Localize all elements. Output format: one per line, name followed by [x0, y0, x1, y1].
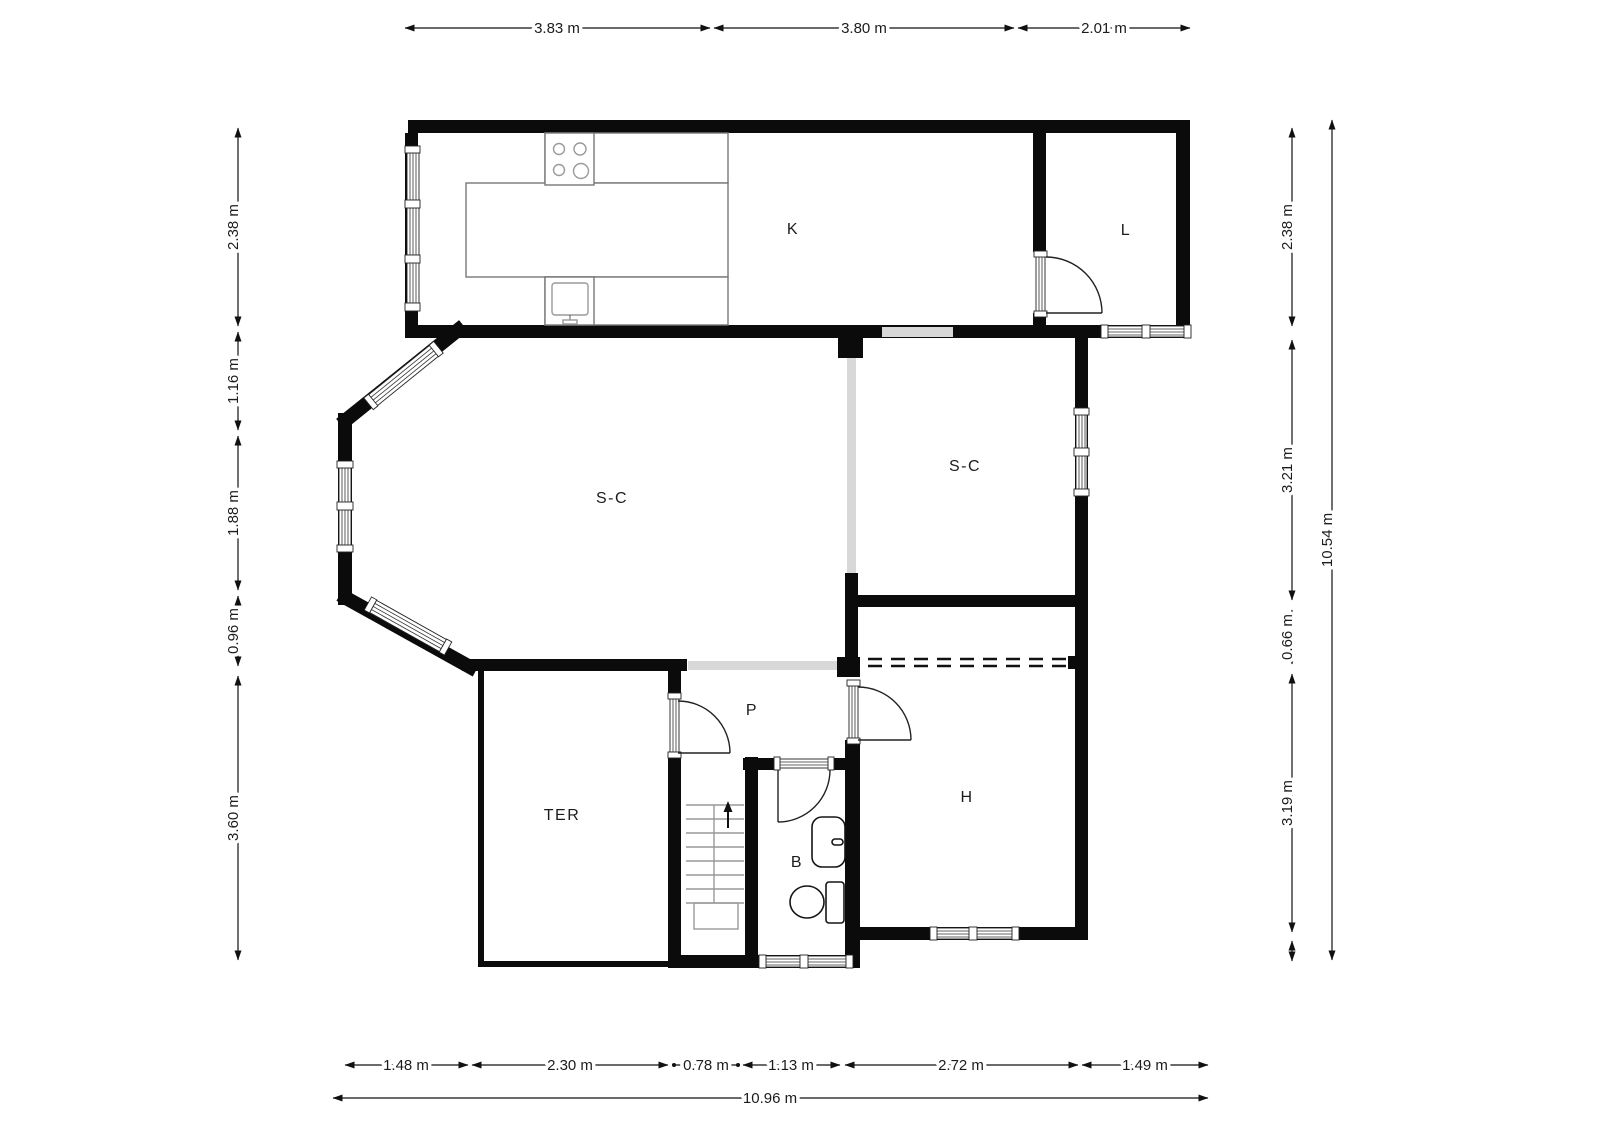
- wall-bath-right: [845, 740, 860, 968]
- window-laundry-bottom: [1101, 325, 1191, 338]
- wall-l-right: [1176, 120, 1190, 338]
- wall-terrace-left: [478, 671, 484, 967]
- room-label-living-right: S-C: [949, 458, 981, 475]
- door-bathroom: [774, 757, 834, 822]
- openings: [688, 327, 953, 670]
- wall-sc-divider-stub-top: [838, 338, 863, 358]
- dim-bottom-0: 1.48 m: [383, 1057, 429, 1074]
- dim-right-0: 2.38 m: [1279, 204, 1296, 250]
- wall-kitchen-bottom: [405, 325, 1190, 338]
- window-living-right: [1074, 408, 1089, 496]
- dim-right-2: 0.66 m: [1279, 614, 1296, 660]
- windows: [337, 146, 1191, 968]
- dim-top-0: 3.83 m: [534, 20, 580, 37]
- dim-left-1: 1.16 m: [225, 358, 242, 404]
- window-bedroom-bottom: [930, 927, 1019, 940]
- room-label-hallway: P: [746, 702, 758, 719]
- wall-right-lower: [1075, 607, 1088, 940]
- window-bay-left: [337, 461, 353, 552]
- dim-right-total: 10.54 m: [1319, 513, 1336, 567]
- kitchen-sink-icon: [545, 277, 594, 325]
- room-label-living-left: S-C: [596, 490, 628, 507]
- door-laundry: [1034, 251, 1102, 317]
- wall-stairs-right: [745, 757, 758, 968]
- dim-left-4: 3.60 m: [225, 795, 242, 841]
- kitchen-island: [466, 183, 728, 277]
- dim-bottom-total: 10.96 m: [743, 1090, 797, 1107]
- stove-icon: [545, 133, 594, 185]
- stair-landing: [694, 903, 738, 929]
- staircase: [686, 801, 744, 929]
- room-label-terrace: TER: [544, 807, 581, 824]
- dim-top-2: 2.01 m: [1081, 20, 1127, 37]
- floor-plan-page: K L S-C S-C P TER B H: [0, 0, 1600, 1132]
- door-terrace-hall: [668, 693, 730, 758]
- wall-sc-right-bottom: [845, 595, 1088, 607]
- window-bay-diagonal-top: [364, 341, 443, 409]
- window-bathroom-bottom: [759, 955, 853, 968]
- dim-right-1: 3.21 m: [1279, 447, 1296, 493]
- dim-right-3: 3.19 m: [1279, 780, 1296, 826]
- dim-top-1: 3.80 m: [841, 20, 887, 37]
- wall-terrace-bottom: [481, 961, 671, 967]
- dim-bottom-5: 1.49 m: [1122, 1057, 1168, 1074]
- wall-hall-left-lower: [668, 753, 681, 968]
- wall-terrace-top: [462, 659, 687, 671]
- dim-left-2: 1.88 m: [225, 490, 242, 536]
- wall-hall-top-post: [837, 657, 860, 677]
- kitchen-fixtures: [466, 133, 728, 325]
- floor-plan-svg: K L S-C S-C P TER B H: [0, 0, 1600, 1132]
- room-label-kitchen: K: [787, 221, 799, 238]
- bath-sink-icon: [812, 817, 845, 867]
- window-kitchen-left: [405, 146, 420, 311]
- room-label-bedroom: H: [960, 789, 973, 806]
- window-bay-diagonal-bottom: [364, 597, 452, 655]
- wall-top-exterior: [408, 120, 1190, 133]
- partition-living-divider: [847, 358, 856, 573]
- door-hall-bedroom: [847, 680, 911, 744]
- opening-living-to-hall: [688, 661, 837, 670]
- wall-kl-divider: [1033, 133, 1046, 252]
- dimension-lines: [238, 28, 1332, 1098]
- opening-kitchen-to-living: [882, 327, 953, 337]
- wall-hall-left-upper: [668, 659, 681, 697]
- toilet-icon: [790, 882, 844, 923]
- room-label-bathroom: B: [791, 854, 803, 871]
- wall-bath-top-left: [743, 758, 778, 770]
- dashed-partition-bedroom: [868, 659, 1068, 666]
- dim-left-3: 0.96 m: [225, 608, 242, 654]
- room-label-laundry: L: [1121, 222, 1131, 239]
- dim-bottom-1: 2.30 m: [547, 1057, 593, 1074]
- dim-bottom-2: 0.78 m: [683, 1057, 729, 1074]
- dim-bottom-3: 1.13 m: [768, 1057, 814, 1074]
- dimension-labels: 3.83 m 3.80 m 2.01 m 1.48 m 2.30 m 0.78 …: [225, 20, 1336, 1107]
- dim-left-0: 2.38 m: [225, 204, 242, 250]
- dim-bottom-4: 2.72 m: [938, 1057, 984, 1074]
- wall-dashed-end-cap: [1068, 656, 1076, 669]
